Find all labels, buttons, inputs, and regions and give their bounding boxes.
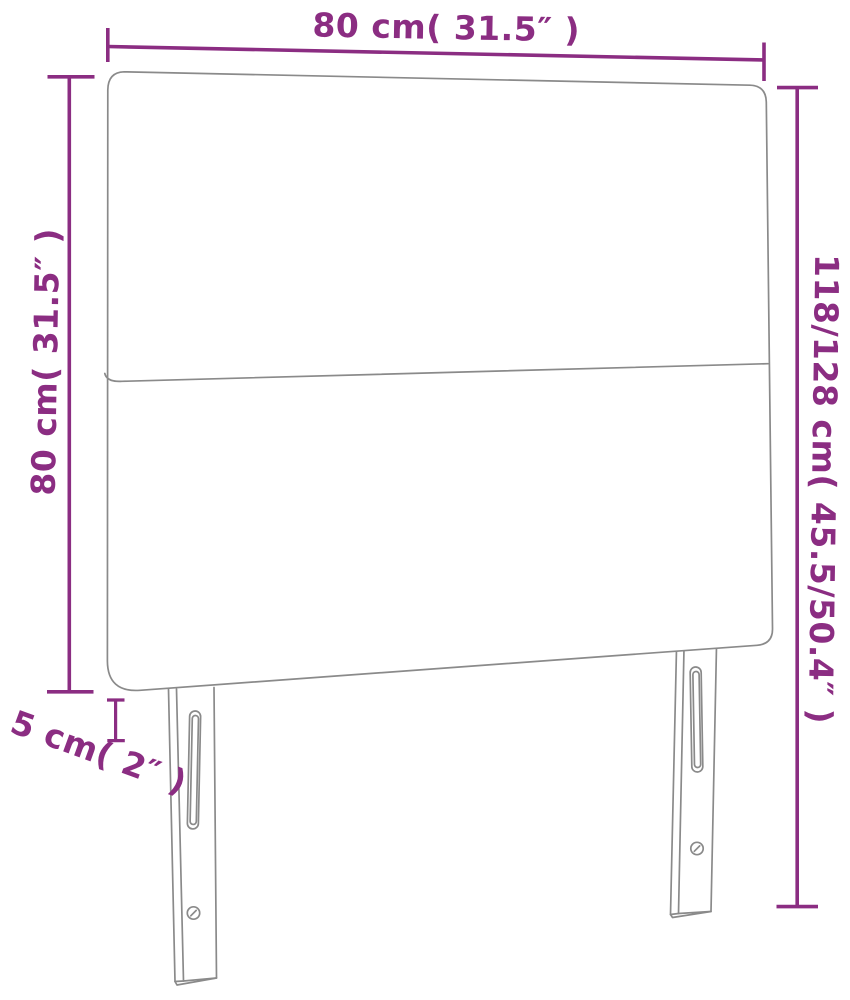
dimension-top-line	[108, 47, 764, 61]
diagram-canvas: 80 cm( 31.5″ ) 80 cm( 31.5″ ) 118/128 cm…	[0, 0, 850, 1000]
headboard-outline	[107, 72, 772, 691]
leg-right-side-edge	[671, 649, 679, 915]
dimension-depth: 5 cm( 2″ )	[6, 700, 192, 802]
leg-right	[671, 647, 717, 918]
headboard-dimension-diagram: 80 cm( 31.5″ ) 80 cm( 31.5″ ) 118/128 cm…	[0, 0, 850, 1000]
leg-left	[169, 688, 217, 986]
depth-label: 5 cm( 2″ )	[6, 702, 192, 802]
left-height-label: 80 cm( 31.5″ )	[24, 228, 68, 496]
dimension-left-height: 80 cm( 31.5″ )	[24, 77, 95, 692]
headboard-body	[105, 72, 773, 691]
leg-left-front-face	[177, 688, 217, 982]
dimension-right-height: 118/128 cm( 45.5/50.4″ )	[777, 88, 847, 907]
dimension-top-width: 80 cm( 31.5″ )	[108, 5, 764, 81]
right-height-label: 118/128 cm( 45.5/50.4″ )	[801, 254, 847, 725]
leg-right-front-face	[679, 647, 717, 914]
top-width-label: 80 cm( 31.5″ )	[312, 5, 580, 49]
